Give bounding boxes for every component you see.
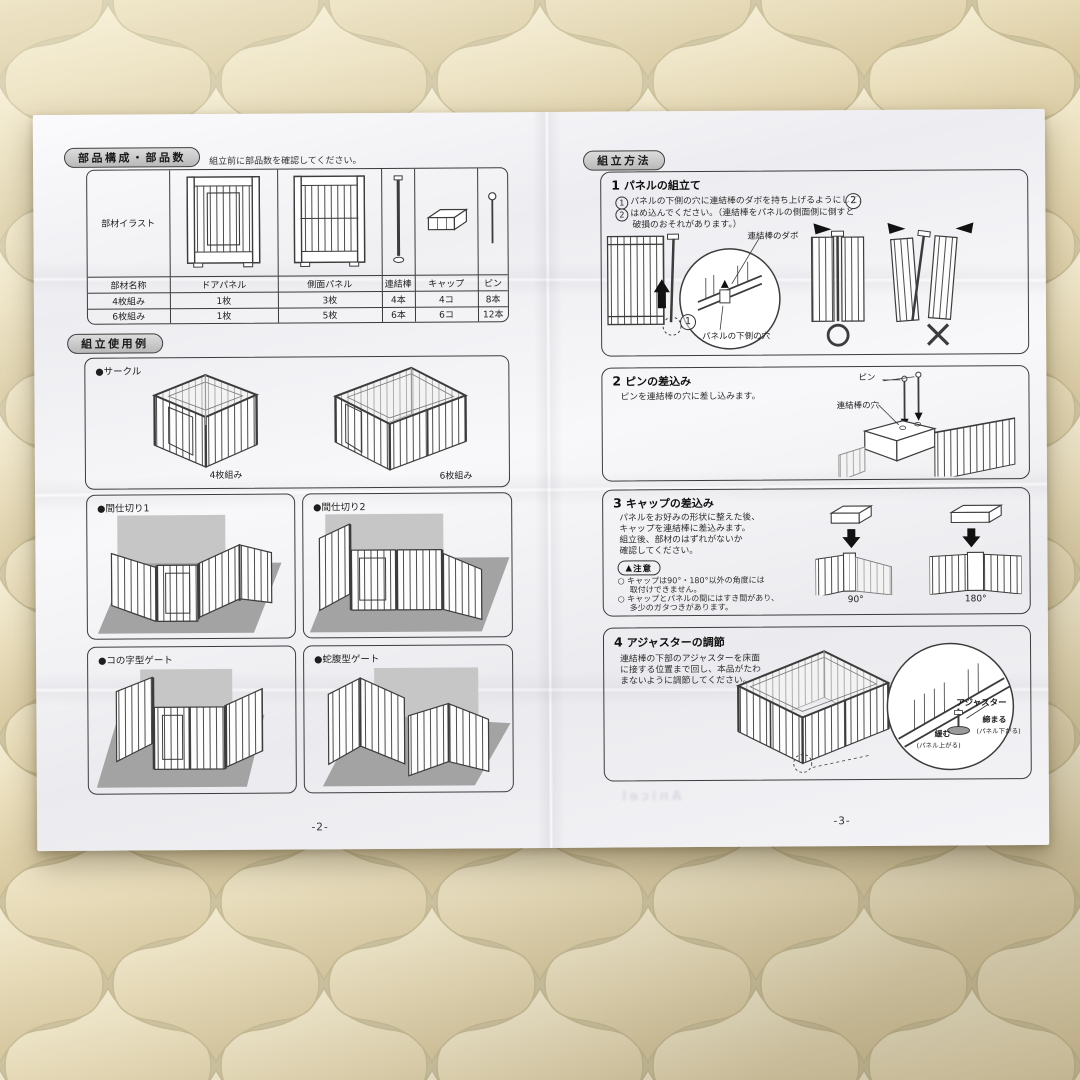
partition1-illustration: [95, 513, 288, 636]
table-cell: 8本: [478, 290, 508, 306]
step-number: 4: [614, 635, 623, 650]
table-cell: 1枚: [170, 292, 278, 309]
partition2-illustration: [309, 511, 510, 634]
label-tighten-sub: (パネル下がる): [977, 725, 1021, 735]
step2-illustration: [830, 370, 1023, 477]
caption-4set: 4枚組み: [186, 468, 266, 481]
table-cell: 側面パネル: [278, 275, 382, 292]
door-panel-icon: [169, 170, 278, 277]
label-loosen: 緩む: [935, 729, 951, 740]
step3-line2: キャップを連結棒に差込みます。: [619, 524, 750, 536]
table-cell: 3枚: [278, 291, 382, 308]
manual-paper: 部品構成・部品数 組立前に部品数を確認してください。 部材イラスト: [33, 109, 1049, 851]
table-cell: 部材イラスト: [87, 170, 170, 276]
adjuster-magnifier-illustration: [870, 638, 1031, 779]
table-cell: 4本: [382, 291, 415, 307]
cap-90-illustration: [815, 503, 894, 595]
circled-2: 2: [615, 208, 628, 221]
step2-line1: ピンを連結棒の穴に差し込みます。: [620, 392, 760, 404]
step-number: 1: [611, 178, 620, 193]
step1-illustration: [601, 220, 1028, 355]
pin-icon: [477, 168, 508, 274]
table-cell: 4コ: [415, 290, 478, 306]
step1-title: 1パネルの組立て: [611, 177, 701, 194]
step-number: 3: [613, 496, 622, 511]
ugate-illustration: [96, 667, 289, 790]
table-row-illustrations: 部材イラスト: [87, 168, 508, 277]
label-180deg: 180°: [956, 594, 996, 604]
example-label: ●蛇腹型ゲート: [314, 651, 379, 665]
step4-title: 4アジャスターの調節: [614, 634, 725, 651]
photo-of-manual: 部品構成・部品数 組立前に部品数を確認してください。 部材イラスト: [0, 0, 1080, 1080]
example-accordion-box: ●蛇腹型ゲート: [303, 644, 514, 793]
step-number: 2: [612, 374, 621, 389]
caution-badge: ▲注意: [617, 560, 660, 575]
step3-box: 3キャップの差込み パネルをお好みの形状に整えた後、 キャップを連結棒に差込みま…: [602, 487, 1031, 617]
cap-icon: [414, 168, 478, 274]
page-number-3: -3-: [807, 815, 877, 827]
side-panel-icon: [277, 169, 382, 276]
step3-line4: 確認してください。: [619, 546, 698, 557]
table-cell: 連結棒: [382, 275, 415, 291]
parts-note: 組立前に部品数を確認してください。: [209, 153, 362, 167]
step3-line1: パネルをお好みの形状に整えた後、: [619, 513, 760, 525]
cap-180-illustration: [929, 502, 1022, 595]
step3-title: 3キャップの差込み: [613, 495, 714, 512]
section-title-parts: 部品構成・部品数: [64, 147, 200, 168]
rod-icon: [381, 169, 415, 275]
warning-triangle-icon: ▲: [626, 563, 634, 573]
step2-box: 2ピンの差込み ピンを連結棒の穴に差し込みます。: [601, 365, 1030, 482]
center-fold: [533, 112, 565, 848]
accordion-illustration: [310, 665, 511, 788]
label-rod-hole: 連結棒の穴: [837, 399, 880, 411]
circled-mark-2: 2: [845, 193, 861, 209]
label-loosen-sub: (パネル上がる): [917, 739, 961, 749]
example-partition1-box: ●間仕切り1: [86, 494, 296, 640]
label-pin: ピン: [858, 371, 875, 383]
table-cell: ドアパネル: [170, 276, 278, 293]
step1-box: 1パネルの組立て 1パネルの下側の穴に連結棒のダボを持ち上げるようにして、 2は…: [600, 169, 1029, 357]
table-cell: 6コ: [415, 306, 478, 321]
label-adjuster: アジャスター: [956, 696, 1006, 708]
caution-item2b: 多少のガタつきがあります。: [630, 603, 733, 613]
example-ugate-box: ●コの字型ゲート: [87, 645, 297, 794]
circled-mark-1: 1: [680, 314, 696, 330]
table-cell: 12本: [478, 306, 508, 321]
table-cell: 部材名称: [88, 276, 170, 293]
example-label: ●コの字型ゲート: [98, 652, 173, 666]
caption-6set: 6枚組み: [416, 468, 496, 481]
table-cell: 6枚組み: [88, 308, 170, 324]
label-90deg: 90°: [836, 595, 876, 605]
example-label: ●サークル: [95, 363, 141, 377]
table-row-6set: 6枚組み 1枚 5枚 6本 6コ 12本: [88, 306, 508, 324]
step2-title: 2ピンの差込み: [612, 373, 691, 389]
parts-table: 部材イラスト: [86, 167, 509, 325]
table-cell: ピン: [478, 274, 508, 290]
example-partition2-box: ●間仕切り2: [302, 492, 513, 638]
table-cell: 1枚: [170, 308, 278, 324]
table-cell: キャップ: [415, 274, 478, 290]
show-through-text: Anicel: [619, 789, 682, 804]
section-title-examples: 組立使用例: [67, 333, 163, 354]
label-tighten: 締まる: [982, 714, 1006, 725]
step3-line3: 組立後、部材のはずれがないか: [619, 535, 742, 547]
table-cell: 5枚: [278, 307, 382, 323]
example-circle-box: ●サークル 4枚組み: [84, 355, 510, 490]
table-cell: 4枚組み: [88, 292, 170, 309]
section-title-method: 組立方法: [583, 150, 665, 171]
cage-6panel-illustration: [325, 359, 476, 478]
label-panel-bottom-hole: パネルの下側の穴: [702, 330, 770, 342]
cage-4panel-illustration: [140, 365, 271, 478]
page-number-2: -2-: [285, 821, 355, 833]
label-rod-dowel: 連結棒のダボ: [747, 229, 798, 241]
table-cell: 6本: [382, 307, 415, 322]
step4-box: 4アジャスターの調節 連結棒の下部のアジャスターを床面 に接する位置まで回し、本…: [603, 625, 1032, 782]
